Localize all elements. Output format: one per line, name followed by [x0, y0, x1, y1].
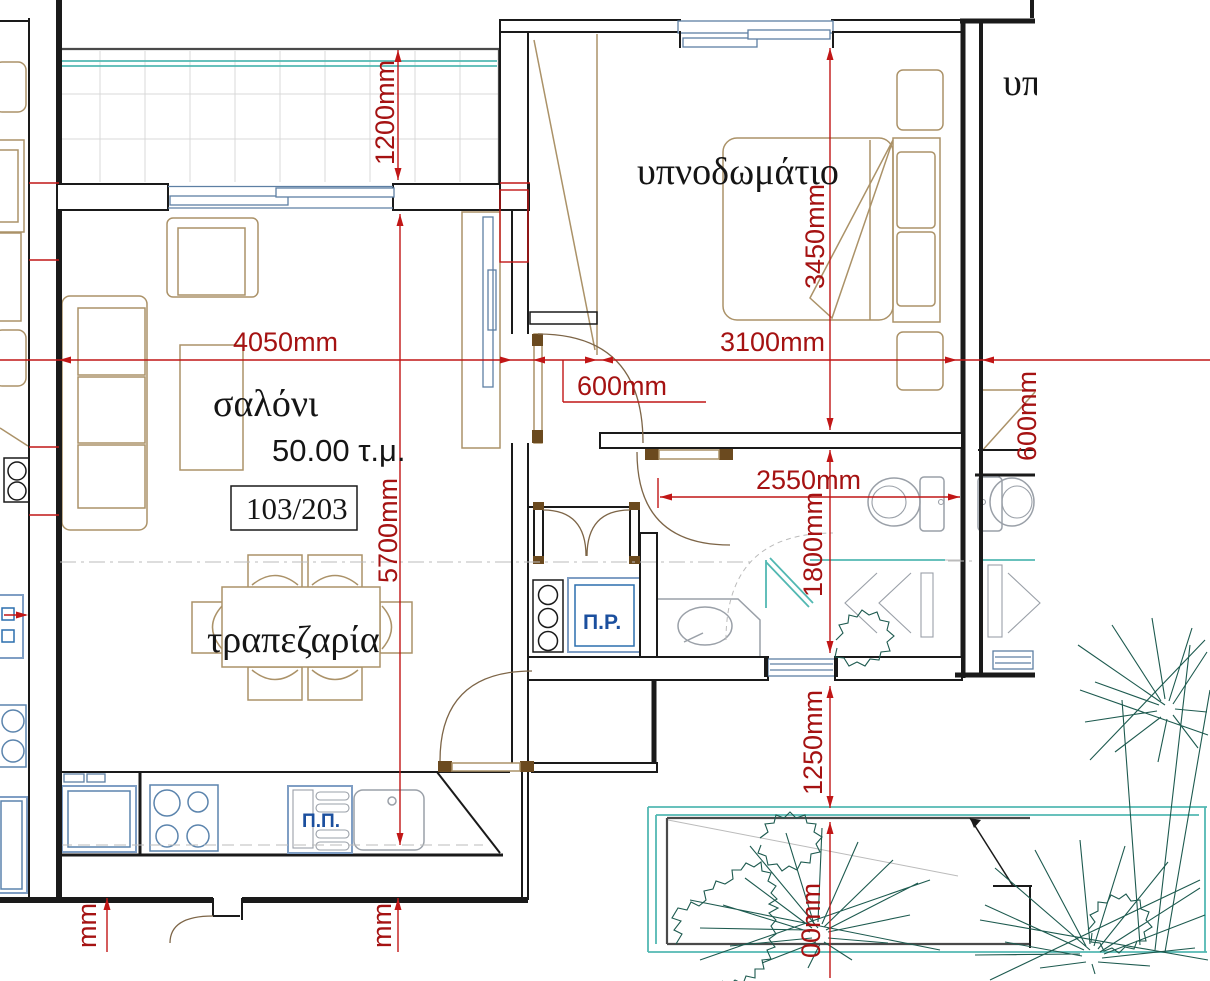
- chair: [248, 555, 302, 589]
- kitchen-fridge: [62, 786, 136, 852]
- chair: [248, 667, 302, 700]
- balcony-sliding-door: [168, 187, 394, 209]
- floor-plan-page: σαλόνι 50.00 τ.μ. 103/203 τραπεζαρία υπν…: [0, 0, 1210, 981]
- faucet: [684, 633, 703, 642]
- towel-rail: [921, 573, 933, 637]
- dim-living-length: 5700mm: [373, 478, 403, 583]
- floor-plan-svg: σαλόνι 50.00 τ.μ. 103/203 τραπεζαρία υπν…: [0, 0, 1210, 981]
- shower-mark: [845, 573, 877, 633]
- entry-door-bottom: [170, 916, 213, 943]
- entry-french-doors: [533, 502, 640, 564]
- toilet-bowl: [868, 478, 920, 526]
- dim-bath-length: 1800mm: [798, 492, 828, 597]
- nightstand: [897, 70, 943, 130]
- room-label-living: σαλόνι: [213, 383, 319, 425]
- water-heater: [533, 580, 563, 652]
- area-label: 50.00 τ.μ.: [272, 433, 406, 468]
- bedroom-window: [678, 21, 833, 48]
- pillow: [897, 232, 935, 306]
- dim-bedroom-width: 3100mm: [720, 327, 825, 357]
- kitchen-door: [438, 671, 534, 772]
- north-pointer: [970, 818, 1013, 886]
- room-label-dining: τραπεζαρία: [207, 619, 380, 661]
- dim-partial-left: mm: [72, 903, 102, 948]
- dim-partial-mid: mm: [367, 903, 397, 948]
- bed-headboard: [893, 138, 940, 322]
- bath-sink: [678, 607, 732, 645]
- dim-terrace-offset: 1250mm: [798, 690, 828, 795]
- neighbor-shower: [988, 565, 1002, 637]
- unit-number: 103/203: [246, 491, 348, 526]
- pillow: [897, 152, 935, 228]
- wall-column: [500, 20, 528, 210]
- chair: [308, 667, 362, 700]
- dim-door-width: 600mm: [577, 371, 667, 401]
- laundry-label: Π.Ρ.: [583, 611, 621, 634]
- neighbor-window: [993, 651, 1033, 669]
- chair: [308, 555, 362, 589]
- dim-terrace-partial: 00mm: [796, 883, 826, 958]
- bath-window: [764, 657, 838, 677]
- neighbor-toilet-bowl: [990, 478, 1034, 526]
- living-room-furniture: [62, 212, 500, 530]
- dim-living-width: 4050mm: [233, 327, 338, 357]
- wall-bedroom-south: [600, 433, 962, 448]
- room-label-neighbor-partial: υπ: [1003, 62, 1041, 104]
- sofa: [62, 296, 147, 530]
- dim-neighbor-door: 600mm: [1012, 371, 1042, 461]
- dishwasher-label: Π.Π.: [302, 811, 340, 832]
- dim-bedroom-length: 3450mm: [800, 184, 830, 289]
- neighbor-left-apartment: [0, 21, 29, 893]
- nightstand: [897, 332, 943, 390]
- neighbor-dishwasher: [0, 595, 23, 658]
- dim-hall-width: 2550mm: [756, 465, 861, 495]
- balcony-top: [57, 49, 500, 183]
- dim-balcony-depth: 1200mm: [370, 60, 400, 165]
- counter-end: [437, 772, 500, 853]
- neighbor-fridge: [0, 797, 27, 893]
- kitchen: [59, 772, 510, 855]
